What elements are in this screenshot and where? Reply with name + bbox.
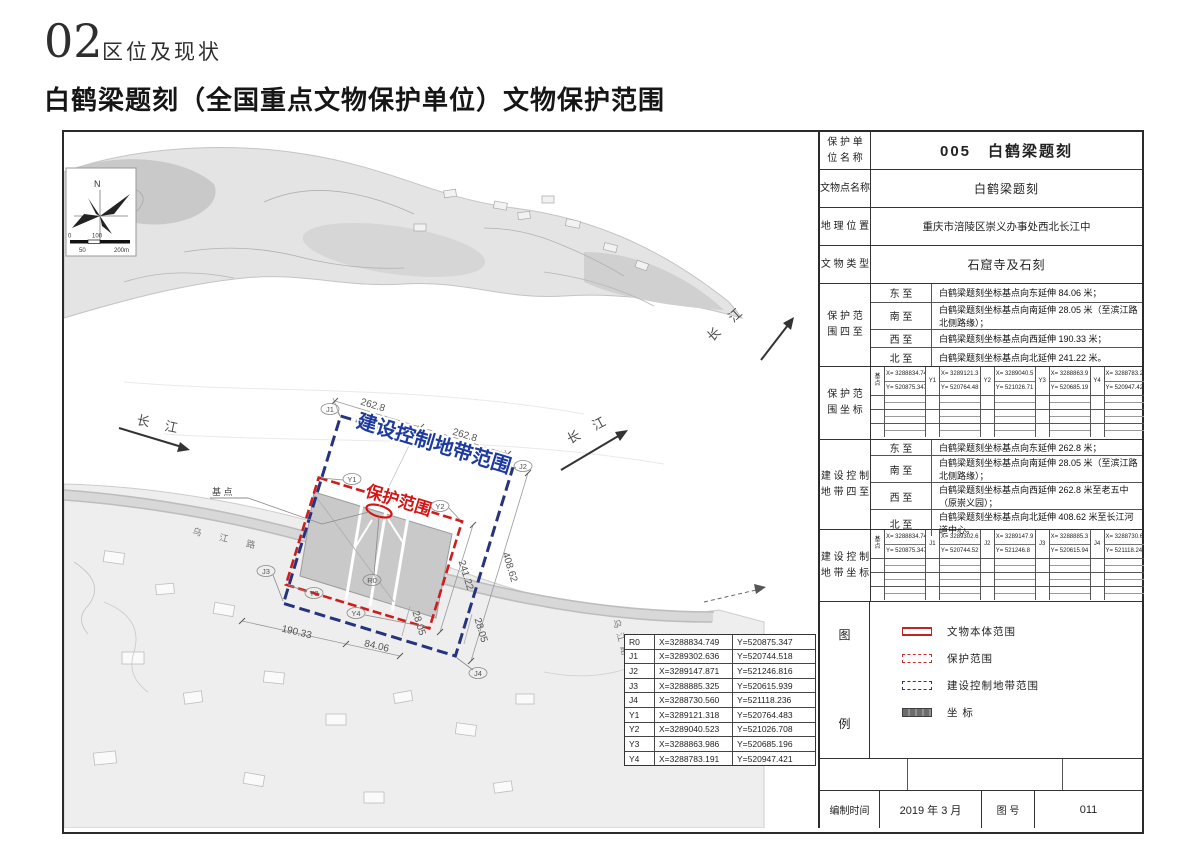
coord-x: X=3288783.191 (655, 752, 733, 766)
coord-x: X=3288730.560 (655, 693, 733, 707)
section-protection-bounds: 保 护 范 围 四 至 东 至白鹤梁题刻坐标基点向东延伸 84.06 米； 南 … (820, 284, 1142, 367)
coord-y: Y=520875.347 (733, 635, 815, 649)
legend-header-top: 图 (838, 626, 850, 645)
coord-pt: Y3 (625, 737, 655, 751)
legend-header: 图 例 (820, 602, 870, 758)
pt-r0: R0 (367, 576, 377, 585)
legend-label: 保护范围 (947, 651, 993, 666)
legend-label: 建设控制地带范围 (947, 678, 1039, 693)
coord-pt-label: Y1 (926, 367, 940, 395)
pt-y3: Y3 (309, 589, 318, 598)
section-protection-coords: 保 护 范 围 坐 标 基 点 X= 3288834.749Y= 520875.… (820, 367, 1142, 440)
dir-text: 白鹤梁题刻坐标基点向南延伸 28.05 米（至滨江路北侧路缘）； (932, 456, 1142, 482)
coord-values: X= 3289147.9Y= 521246.8 (995, 530, 1036, 558)
legend-swatch-monument (902, 627, 932, 636)
scale-200: 200m (114, 248, 129, 254)
control-zone-label: 建设控制地带范围 (354, 408, 514, 478)
base-point-label: 基 点 (212, 486, 233, 497)
row-label: 文物点名称 (820, 170, 871, 207)
page-title: 白鹤梁题刻（全国重点文物保护单位）文物保护范围 (44, 80, 665, 117)
bound-row: 北 至白鹤梁题刻坐标基点向北延伸 241.22 米。 (871, 348, 1142, 366)
coord-pt-label: Y3 (1036, 367, 1050, 395)
coord-pt-label: Y2 (981, 367, 995, 395)
bound-row: 西 至白鹤梁题刻坐标基点向西延伸 262.8 米至老五中（原崇义园）； (871, 483, 1142, 510)
table-row: R0X=3288834.749Y=520875.347 (625, 635, 815, 650)
site-value: 白鹤梁题刻 (871, 170, 1142, 207)
blank-row (820, 759, 1142, 791)
coord-x: X=3289147.871 (655, 664, 733, 678)
coord-values: X= 3288783.2Y= 520947.42 (1105, 367, 1145, 395)
coord-grid-empty-row (871, 573, 1144, 587)
river-label-mid: 长 江 (564, 411, 613, 447)
table-row: J4X=3288730.560Y=521118.236 (625, 693, 815, 708)
terrain-north-bank (64, 148, 742, 318)
dir-text: 白鹤梁题刻坐标基点向东延伸 84.06 米； (932, 284, 1142, 302)
coord-pt-label: J2 (981, 530, 995, 558)
dir-label: 东 至 (871, 284, 932, 302)
section-control-coords: 建 设 控 制 地 带 坐 标 基 点 X= 3288834.749Y= 520… (820, 530, 1142, 602)
legend-swatch-protection (902, 654, 932, 663)
date-value: 2019 年 3 月 (880, 791, 982, 828)
coord-y: Y=520744.518 (733, 650, 815, 664)
coord-y: Y=521246.816 (733, 664, 815, 678)
divider (1062, 759, 1063, 790)
legend-item-monument: 文物本体范围 (902, 624, 1142, 639)
row-label: 地 理 位 置 (820, 208, 871, 245)
table-row: J2X=3289147.871Y=521246.816 (625, 664, 815, 679)
coord-values: X= 3288834.749Y= 520875.347 (885, 530, 926, 558)
coord-y: Y=520685.196 (733, 737, 815, 751)
river-label-west: 长 江 (135, 412, 185, 437)
coord-y: Y=521026.708 (733, 723, 815, 737)
coord-x: X=3289040.523 (655, 723, 733, 737)
dir-text: 白鹤梁题刻坐标基点向西延伸 190.33 米； (932, 330, 1142, 348)
pt-j3: J3 (262, 567, 270, 576)
bound-row: 西 至白鹤梁题刻坐标基点向西延伸 190.33 米； (871, 330, 1142, 349)
row-label: 文 物 类 型 (820, 246, 871, 283)
dir-label: 东 至 (871, 440, 932, 455)
coord-pt-label: Y4 (1091, 367, 1105, 395)
table-row: Y4X=3288783.191Y=520947.421 (625, 752, 815, 766)
coordinate-table: R0X=3288834.749Y=520875.347 J1X=3289302.… (624, 634, 816, 766)
coord-grid-empty-row (871, 410, 1144, 424)
legend-header-bottom: 例 (838, 715, 850, 734)
pt-j1: J1 (326, 405, 334, 414)
pt-y2: Y2 (435, 502, 444, 511)
coord-pt: J2 (625, 664, 655, 678)
bound-row: 东 至白鹤梁题刻坐标基点向东延伸 84.06 米； (871, 284, 1142, 303)
coord-pt-label: 基 点 (871, 367, 885, 395)
pt-y1: Y1 (347, 475, 356, 484)
coord-pt: Y2 (625, 723, 655, 737)
legend-item-coordinate: 坐 标 (902, 705, 1142, 720)
coord-grid-empty-row (871, 396, 1144, 410)
bound-row: 南 至白鹤梁题刻坐标基点向南延伸 28.05 米（至滨江路北侧路缘）； (871, 456, 1142, 483)
coord-y: Y=521118.236 (733, 693, 815, 707)
dir-text: 白鹤梁题刻坐标基点向西延伸 262.8 米至老五中（原崇义园）； (932, 483, 1142, 509)
drawing-sheet: N 0 100 50 200m (62, 130, 1144, 834)
dir-label: 南 至 (871, 456, 932, 482)
dir-label: 西 至 (871, 483, 932, 509)
coord-pt-label: J4 (1091, 530, 1105, 558)
section-control-bounds: 建 设 控 制 地 带 四 至 东 至白鹤梁题刻坐标基点向东延伸 262.8 米… (820, 440, 1142, 530)
coord-pt-label: 基 点 (871, 530, 885, 558)
map-area: N 0 100 50 200m (64, 132, 820, 828)
info-panel: 保 护 单 位 名 称 005 白鹤梁题刻 文物点名称 白鹤梁题刻 地 理 位 … (818, 132, 1142, 828)
coord-values: X= 3289040.5Y= 521026.71 (995, 367, 1036, 395)
section-header: 建 设 控 制 地 带 坐 标 (820, 530, 871, 601)
table-row: Y1X=3289121.318Y=520764.483 (625, 708, 815, 723)
north-label: N (94, 179, 101, 189)
coord-x: X=3289121.318 (655, 708, 733, 722)
coord-x: X=3288885.325 (655, 679, 733, 693)
scale-50: 50 (79, 248, 86, 254)
coord-pt: J3 (625, 679, 655, 693)
row-type: 文 物 类 型 石窟寺及石刻 (820, 246, 1142, 284)
date-label: 编制时间 (820, 791, 880, 828)
section-legend: 图 例 文物本体范围 保护范围 建设控制地带范围 坐 标 (820, 602, 1142, 759)
coord-y: Y=520615.939 (733, 679, 815, 693)
table-row: J3X=3288885.325Y=520615.939 (625, 679, 815, 694)
pt-j4: J4 (474, 669, 482, 678)
type-value: 石窟寺及石刻 (871, 246, 1142, 283)
legend-item-protection: 保护范围 (902, 651, 1142, 666)
row-location: 地 理 位 置 重庆市涪陵区崇义办事处西北长江中 (820, 208, 1142, 246)
pt-j2: J2 (519, 462, 527, 471)
pt-y4: Y4 (351, 609, 360, 618)
coord-grid-row: 基 点 X= 3288834.749Y= 520875.347 Y1 X= 32… (871, 367, 1144, 396)
sheet-no-label: 图 号 (982, 791, 1035, 828)
dir-label: 北 至 (871, 348, 932, 366)
title-block-footer: 编制时间 2019 年 3 月 图 号 011 (820, 791, 1142, 828)
dir-text: 白鹤梁题刻坐标基点向北延伸 241.22 米。 (932, 348, 1142, 366)
table-row: Y2X=3289040.523Y=521026.708 (625, 723, 815, 738)
coord-values: X= 3288885.3Y= 520615.94 (1050, 530, 1091, 558)
dir-label: 南 至 (871, 303, 932, 329)
divider (907, 759, 908, 790)
location-value: 重庆市涪陵区崇义办事处西北长江中 (871, 208, 1142, 245)
coord-pt: J1 (625, 650, 655, 664)
coord-values: X= 3288730.6Y= 521118.24 (1105, 530, 1145, 558)
coord-y: Y=520947.421 (733, 752, 815, 766)
coord-x: X=3289302.636 (655, 650, 733, 664)
section-number: 02 (44, 18, 103, 64)
row-site-name: 文物点名称 白鹤梁题刻 (820, 170, 1142, 208)
bound-row: 南 至白鹤梁题刻坐标基点向南延伸 28.05 米（至滨江路北侧路缘）； (871, 303, 1142, 330)
dir-text: 白鹤梁题刻坐标基点向南延伸 28.05 米（至滨江路北侧路缘）； (932, 303, 1142, 329)
coord-grid-empty-row (871, 559, 1144, 573)
section-header: 保 护 范 围 坐 标 (820, 367, 871, 439)
table-row: Y3X=3288863.986Y=520685.196 (625, 737, 815, 752)
section-header: 保 护 范 围 四 至 (820, 284, 871, 366)
coord-values: X= 3289121.3Y= 520764.48 (940, 367, 981, 395)
coord-pt: Y1 (625, 708, 655, 722)
legend-swatch-control-zone (902, 681, 932, 690)
section-label: 区位及现状 (102, 36, 222, 66)
coord-values: X= 3288834.749Y= 520875.347 (885, 367, 926, 395)
coord-grid-row: 基 点 X= 3288834.749Y= 520875.347 J1 X= 32… (871, 530, 1144, 559)
north-compass: N 0 100 50 200m (66, 168, 136, 256)
legend-label: 坐 标 (947, 705, 974, 720)
coord-grid-empty-row (871, 587, 1144, 600)
bound-row: 东 至白鹤梁题刻坐标基点向东延伸 262.8 米； (871, 440, 1142, 456)
coord-y: Y=520764.483 (733, 708, 815, 722)
dir-label: 西 至 (871, 330, 932, 348)
legend-label: 文物本体范围 (947, 624, 1016, 639)
dir-text: 白鹤梁题刻坐标基点向东延伸 262.8 米； (932, 440, 1142, 455)
coord-pt: Y4 (625, 752, 655, 766)
coord-x: X=3288834.749 (655, 635, 733, 649)
coord-pt-label: J1 (926, 530, 940, 558)
unit-value: 005 白鹤梁题刻 (871, 132, 1142, 169)
sheet-no-value: 011 (1035, 791, 1142, 828)
legend-item-control-zone: 建设控制地带范围 (902, 678, 1142, 693)
coord-x: X=3288863.986 (655, 737, 733, 751)
legend-swatch-coordinate (902, 708, 932, 717)
table-row: J1X=3289302.636Y=520744.518 (625, 650, 815, 665)
dim-right2: 408.62 (500, 551, 520, 584)
coord-values: X= 3289302.6Y= 520744.52 (940, 530, 981, 558)
coord-pt-label: J3 (1036, 530, 1050, 558)
row-unit-name: 保 护 单 位 名 称 005 白鹤梁题刻 (820, 132, 1142, 170)
coord-values: X= 3288863.9Y= 520685.19 (1050, 367, 1091, 395)
coord-pt: J4 (625, 693, 655, 707)
coord-grid-empty-row (871, 424, 1144, 437)
section-header: 建 设 控 制 地 带 四 至 (820, 440, 871, 529)
scale-100: 100 (92, 234, 103, 240)
row-label: 保 护 单 位 名 称 (820, 132, 871, 169)
coord-pt: R0 (625, 635, 655, 649)
